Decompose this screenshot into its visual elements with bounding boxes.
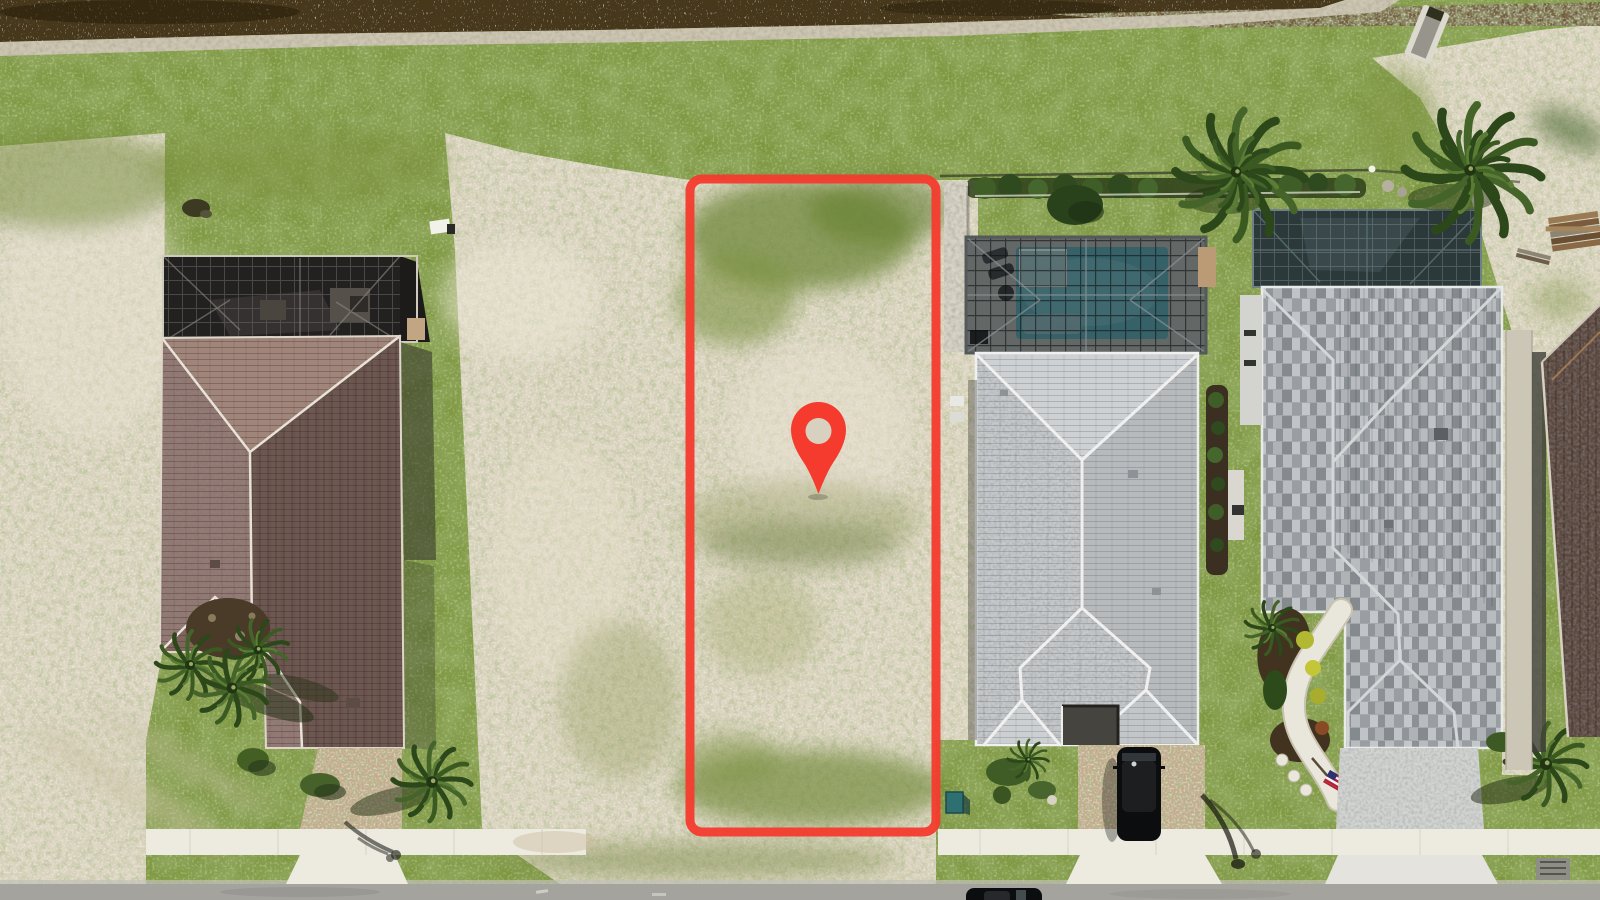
- landscape-stone: [208, 614, 216, 622]
- round-bush: [993, 786, 1011, 804]
- paver-privacy-wall: [944, 182, 968, 352]
- ac-unit: [950, 396, 964, 406]
- house1-apron: [1066, 855, 1222, 884]
- house2-apron: [1325, 855, 1498, 884]
- dark-yard-object: [447, 224, 455, 234]
- pin-shadow: [808, 494, 828, 500]
- paver-column: [1198, 247, 1216, 287]
- roof-vent: [1128, 470, 1138, 478]
- roof-vent: [1434, 428, 1448, 440]
- black-suv: [1102, 747, 1165, 842]
- roof-vent: [346, 698, 360, 708]
- boulder: [1382, 180, 1394, 192]
- aerial-photo-canvas: [0, 0, 1600, 900]
- sidewalk-right-segment: [938, 829, 1600, 855]
- stepping-stone: [1288, 770, 1300, 782]
- red-plant: [1315, 721, 1329, 735]
- roof-vent: [1000, 390, 1008, 396]
- road-marking: [652, 893, 666, 896]
- road-stain: [1110, 889, 1290, 899]
- utility-pad: [407, 318, 425, 340]
- pool-enclosure: [966, 237, 1216, 353]
- suv-windshield: [1122, 753, 1156, 761]
- shrub-shadow: [248, 760, 276, 776]
- boulder: [1397, 187, 1407, 197]
- house1: [944, 182, 1244, 842]
- equipment: [1232, 505, 1244, 515]
- suv-mirror: [1113, 766, 1118, 769]
- yellow-plant: [1296, 631, 1314, 649]
- aerial-photo: [0, 0, 1600, 900]
- bush-shadow: [1068, 201, 1104, 223]
- road-stain: [220, 887, 380, 897]
- stepping-stone: [1276, 754, 1288, 766]
- fence-post-cap: [1369, 166, 1376, 173]
- house-shadow-east: [400, 342, 436, 560]
- storm-drain: [1536, 858, 1570, 880]
- ac-unit: [950, 412, 964, 422]
- yellow-plant: [1305, 660, 1321, 676]
- landscape-stone: [1047, 795, 1057, 805]
- water-dark-patch: [0, 0, 300, 24]
- roof-vent: [210, 560, 220, 568]
- suv-roof: [1122, 760, 1156, 812]
- house-shadow-east: [404, 560, 436, 750]
- suv-sunroof-glint: [1132, 762, 1137, 767]
- entry-notch: [1062, 706, 1118, 745]
- stepping-stone: [1300, 784, 1312, 796]
- wall-shadow-gap: [1532, 352, 1546, 752]
- sidewalk-sand-stain: [513, 831, 597, 853]
- shrub-shadow: [314, 784, 346, 800]
- roof-west-shadow: [968, 380, 977, 740]
- tropical-plant: [1263, 670, 1287, 710]
- left-house-lanai-cage: [163, 256, 430, 342]
- window-slot: [1244, 360, 1256, 366]
- house2-driveway: [1336, 748, 1484, 829]
- window-slot: [1244, 330, 1256, 336]
- roof-vent: [1384, 520, 1393, 528]
- suv-mirror: [1160, 766, 1165, 769]
- shingle-texture: [976, 353, 1198, 745]
- parked-car: [966, 888, 1042, 900]
- debris-bush: [200, 210, 212, 218]
- roof-vent: [1152, 588, 1161, 595]
- house1-roof: [976, 353, 1198, 745]
- side-path: [1506, 330, 1532, 770]
- lanai-patio-item: [260, 300, 286, 320]
- yellow-plant: [1310, 688, 1326, 704]
- pin-hole: [806, 418, 832, 444]
